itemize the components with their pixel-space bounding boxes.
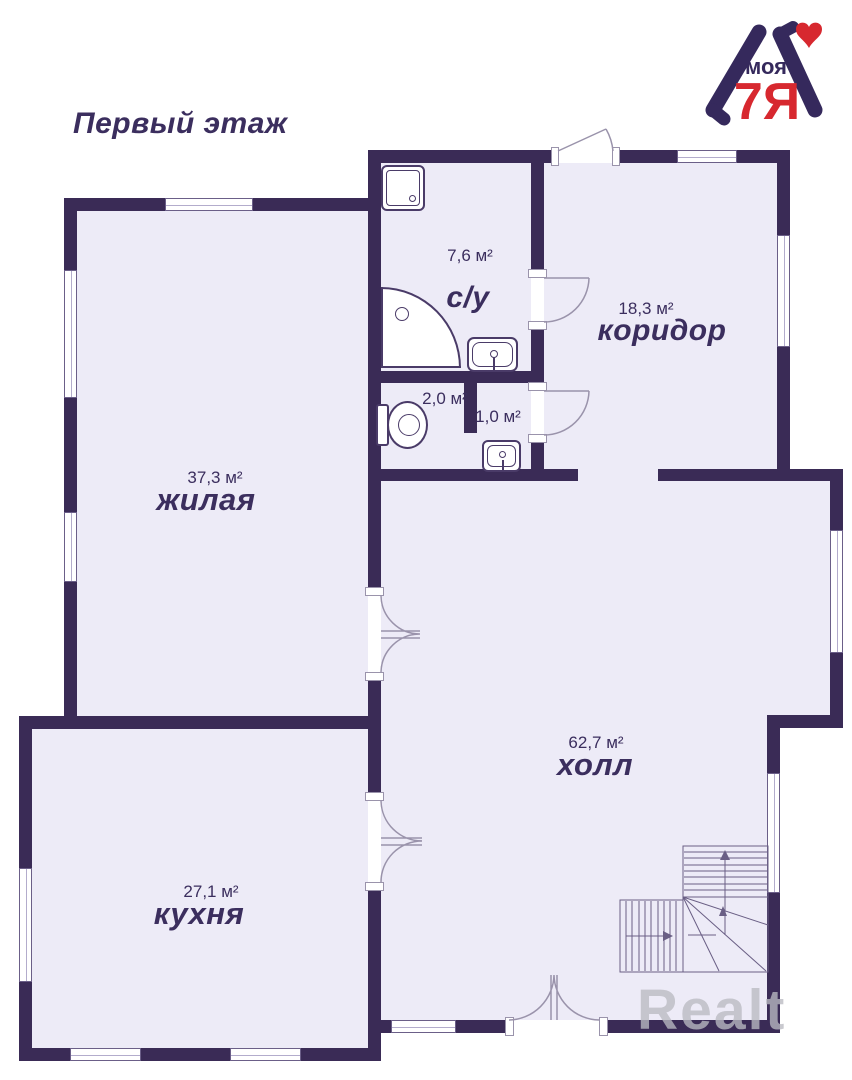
faucet-stem xyxy=(493,357,495,370)
room-label-corridor: коридор xyxy=(598,314,727,348)
faucet-knob xyxy=(499,451,506,458)
room-label-bathroom: с/у xyxy=(446,281,489,315)
faucet-stem xyxy=(502,460,504,470)
room-label-living: жилая xyxy=(156,482,255,518)
door-opening-kitchen xyxy=(368,800,381,883)
door-jamb xyxy=(365,587,384,596)
floor-hall xyxy=(368,469,790,728)
heart-icon xyxy=(796,23,822,48)
room-area-bathroom: 7,6 м² xyxy=(447,246,493,266)
floor-plan: Первый этаж моя 7Я xyxy=(0,0,852,1080)
door-jamb xyxy=(599,1017,608,1036)
logo: моя 7Я xyxy=(693,12,845,147)
door-opening-hall-south xyxy=(508,1020,600,1033)
door-jamb xyxy=(365,672,384,681)
washing-machine xyxy=(381,165,425,211)
door-jamb xyxy=(612,147,620,166)
door-opening-bathroom xyxy=(531,277,544,322)
wall xyxy=(368,371,544,383)
page-title: Первый этаж xyxy=(73,107,288,141)
window xyxy=(19,868,32,982)
window xyxy=(64,270,77,398)
door-opening-living xyxy=(368,595,381,673)
watermark: Realt xyxy=(637,977,786,1043)
window xyxy=(70,1048,141,1061)
door-jamb xyxy=(528,434,547,443)
room-label-hall: холл xyxy=(557,747,633,783)
room-area-lavatory: 1,0 м² xyxy=(475,407,521,427)
logo-word-bottom: 7Я xyxy=(734,73,800,131)
toilet-bowl-inner xyxy=(398,414,420,436)
door-jamb xyxy=(505,1017,514,1036)
window xyxy=(777,235,790,347)
room-label-kitchen: кухня xyxy=(154,896,244,932)
wall xyxy=(658,469,843,481)
door-jamb xyxy=(528,269,547,278)
door-entrance xyxy=(558,129,613,151)
door-opening-entrance xyxy=(558,150,613,163)
wall xyxy=(368,469,578,481)
door-opening-lavatory xyxy=(531,390,544,435)
door-jamb xyxy=(528,382,547,391)
washing-machine-drain xyxy=(409,195,416,202)
bathroom-sink xyxy=(467,337,518,372)
window xyxy=(391,1020,456,1033)
window xyxy=(767,773,780,893)
window xyxy=(64,512,77,582)
window xyxy=(165,198,253,211)
door-jamb xyxy=(365,792,384,801)
faucet-knob xyxy=(490,350,498,358)
door-jamb xyxy=(551,147,559,166)
window xyxy=(830,530,843,653)
door-jamb xyxy=(365,882,384,891)
window xyxy=(677,150,737,163)
room-area-wc: 2,0 м² xyxy=(422,389,468,409)
window xyxy=(230,1048,301,1061)
shower-drain xyxy=(395,307,409,321)
door-jamb xyxy=(528,321,547,330)
floor-living xyxy=(64,198,381,730)
lavatory-sink xyxy=(482,440,521,472)
